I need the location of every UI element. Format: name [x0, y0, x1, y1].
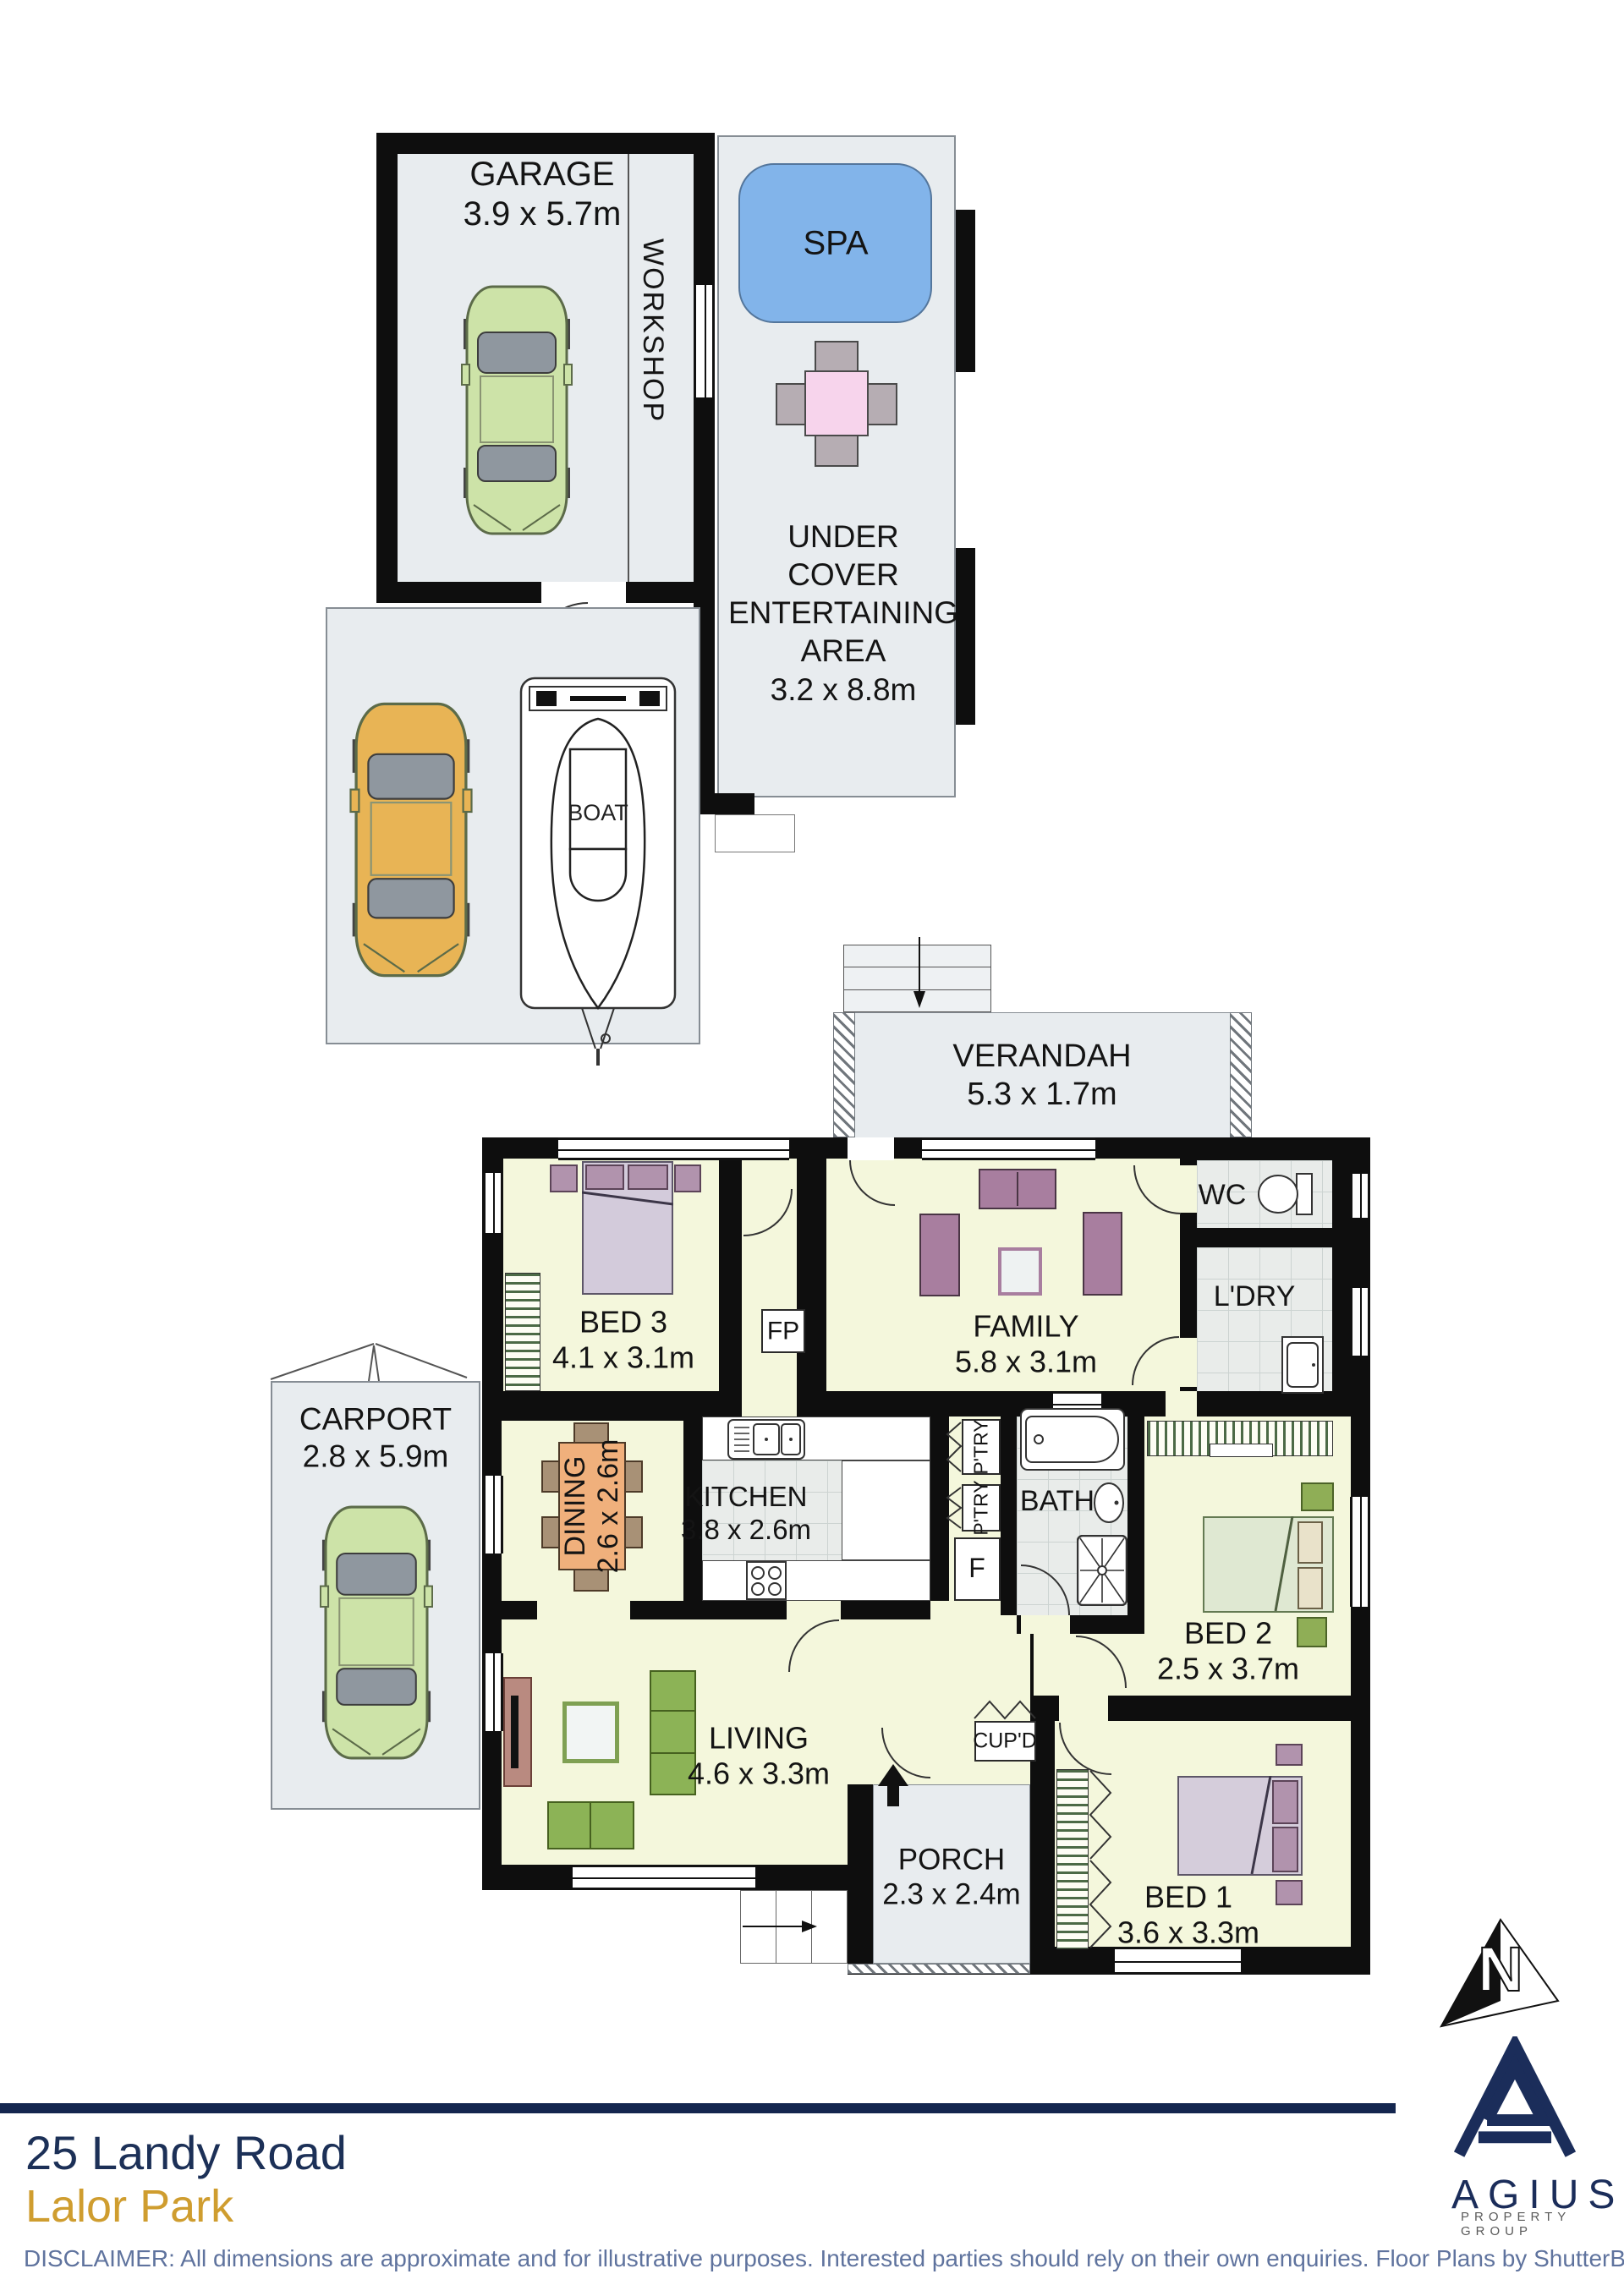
bed3-name: BED 3: [579, 1305, 667, 1340]
kitchen-stove: [746, 1561, 787, 1600]
entertaining-right-wall-2: [956, 548, 975, 725]
entertaining-step: [715, 814, 795, 852]
kitchen-name: KITCHEN: [685, 1481, 808, 1512]
bed3-dims: 4.1 x 3.1m: [552, 1340, 694, 1375]
family-name: FAMILY: [973, 1309, 1078, 1344]
footer-divider: [0, 2103, 1396, 2113]
agius-logo-tagline: PROPERTY GROUP: [1461, 2210, 1624, 2238]
shower: [1077, 1535, 1127, 1606]
bed3-left-window: [483, 1173, 503, 1233]
workshop-window: [694, 285, 715, 397]
bed2-dims: 2.5 x 3.7m: [1157, 1652, 1299, 1686]
address-street: 25 Landy Road: [25, 2125, 347, 2180]
tv: [511, 1696, 518, 1768]
entertaining-right-wall-1: [956, 210, 975, 372]
agius-logo-icon: [1451, 2036, 1579, 2163]
dining-left-window: [483, 1476, 503, 1553]
wc-label: WC: [1199, 1178, 1247, 1212]
entertaining-line4: AREA: [801, 634, 886, 669]
carport-label: CARPORT 2.8 x 5.9m: [299, 1400, 452, 1474]
bed1-pillow-2: [1272, 1827, 1298, 1872]
garage-door-gap: [541, 582, 626, 603]
bed3-pillow-1: [585, 1164, 624, 1190]
disclaimer-text: DISCLAIMER: All dimensions are approxima…: [24, 2245, 1624, 2272]
verandah-hatch-right: [1230, 1012, 1252, 1137]
porch-label: PORCH 2.3 x 2.4m: [882, 1843, 1020, 1913]
bed3-top-window: [558, 1137, 789, 1160]
kitchen-label: KITCHEN 3.8 x 2.6m: [681, 1481, 811, 1547]
bed2-right-window: [1350, 1497, 1370, 1607]
carport-name: CARPORT: [299, 1401, 452, 1436]
garage-car: [461, 283, 573, 537]
spa-label: SPA: [803, 223, 868, 263]
pantry-bath-wall: [1001, 1417, 1017, 1615]
hardstand-car: [347, 700, 475, 979]
verandah-steps-arrow: [909, 937, 930, 1010]
wc-toilet: [1256, 1172, 1315, 1216]
outdoor-chair-right: [865, 383, 897, 425]
floorplan-page: GARAGE 3.9 x 5.7m WORKSHOP SPA UNDER COV…: [0, 0, 1624, 2296]
bed2-pillow-1: [1298, 1521, 1323, 1564]
bed1-fold-line: [1218, 1776, 1272, 1876]
porch-dims: 2.3 x 2.4m: [882, 1878, 1020, 1911]
living-label: LIVING 4.6 x 3.3m: [688, 1721, 830, 1793]
family-coffee-table: [998, 1247, 1042, 1296]
boat-trailer: BOAT: [518, 675, 680, 1068]
family-armchair-left: [919, 1214, 960, 1296]
verandah-dims: 5.3 x 1.7m: [967, 1077, 1116, 1112]
garage-name: GARAGE: [469, 156, 614, 193]
bed1-wardrobe: [1056, 1769, 1089, 1949]
porch-step-hatch: [848, 1964, 1030, 1974]
pantry-door-zigzag-1: [946, 1421, 963, 1473]
bed3-label: BED 3 4.1 x 3.1m: [552, 1305, 694, 1377]
bed1-wardrobe-doors: [1089, 1769, 1112, 1949]
bed3-fold-line: [582, 1191, 673, 1208]
hall1-opening: [742, 1391, 797, 1417]
living-bottom-window: [573, 1865, 755, 1890]
bed3-right-wall: [719, 1236, 742, 1395]
fridge-label: F: [968, 1553, 985, 1585]
family-label: FAMILY 5.8 x 3.1m: [955, 1309, 1097, 1381]
boat-label: BOAT: [568, 800, 628, 825]
bed1-cushion-bottom: [1276, 1880, 1303, 1905]
verandah-name: VERANDAH: [952, 1038, 1131, 1074]
carport-gable: [269, 1339, 470, 1383]
outdoor-table: [804, 370, 869, 436]
garage-dims: 3.9 x 5.7m: [464, 195, 622, 233]
verandah-label: VERANDAH 5.3 x 1.7m: [952, 1038, 1131, 1114]
bed3-pillow-2: [628, 1164, 668, 1190]
dining-chair-l2: [541, 1516, 560, 1548]
living-dims: 4.6 x 3.3m: [688, 1756, 830, 1791]
address-suburb: Lalor Park: [25, 2180, 233, 2233]
bed1-name: BED 1: [1144, 1880, 1232, 1915]
side-wall-foot: [694, 793, 754, 814]
bed1-door-gap: [1059, 1696, 1108, 1721]
living-coffee-table: [562, 1701, 619, 1763]
porch-name: PORCH: [898, 1844, 1005, 1877]
wc-right-window: [1350, 1174, 1370, 1218]
family-sofa-line: [1017, 1172, 1018, 1206]
entertaining-line1: UNDER: [787, 519, 899, 554]
kitchen-dims: 3.8 x 2.6m: [681, 1514, 811, 1545]
bed1-cushion-top: [1276, 1744, 1303, 1766]
bed2-wardrobe-notch: [1210, 1444, 1273, 1457]
bed2-label: BED 2 2.5 x 3.7m: [1157, 1616, 1299, 1688]
bed2-fold-line: [1243, 1516, 1294, 1613]
bed3-sidetable-left: [550, 1164, 578, 1192]
outdoor-chair-left: [776, 383, 808, 425]
porch-entry-arrow: [878, 1764, 908, 1806]
bath-basin: [1093, 1482, 1125, 1524]
laundry-label: L'DRY: [1214, 1280, 1296, 1313]
bed1-pillow-1: [1272, 1780, 1298, 1824]
cupboard-label: CUP'D: [973, 1729, 1037, 1754]
kitchen-bench-bottom: [702, 1560, 930, 1601]
family-top-window: [922, 1137, 1095, 1160]
side-steps-arrow: [743, 1918, 819, 1935]
outdoor-chair-top: [815, 341, 859, 373]
dining-label: DINING 2.6 x 2.6m: [559, 1439, 625, 1574]
wc-laundry-wall: [1197, 1228, 1332, 1247]
corridor-opening: [1166, 1391, 1197, 1417]
mid-wall-row: [502, 1391, 1351, 1417]
dining-wall-stub: [502, 1601, 537, 1619]
garage-label: GARAGE 3.9 x 5.7m: [464, 155, 622, 234]
dining-name: DINING: [559, 1456, 591, 1557]
kitchen-bench-right: [842, 1460, 930, 1560]
bed2-name: BED 2: [1184, 1616, 1272, 1651]
living-left-window: [483, 1653, 503, 1731]
living-sofa-bottom-line: [590, 1803, 591, 1848]
corridor-door-gap-top: [1180, 1165, 1197, 1213]
laundry-right-window: [1350, 1288, 1370, 1356]
north-arrow-icon: N: [1436, 1916, 1563, 2031]
dining-chair-r1: [624, 1460, 643, 1493]
family-armchair-right: [1083, 1212, 1122, 1296]
kitchen-door-gap: [787, 1601, 841, 1619]
corridor-door-gap-bottom: [1180, 1338, 1197, 1387]
family-dims: 5.8 x 3.1m: [955, 1345, 1097, 1379]
outdoor-chair-bottom: [815, 435, 859, 467]
dining-chair-r2: [624, 1516, 643, 1548]
bath-label: BATH: [1020, 1484, 1095, 1518]
workshop-label: WORKSHOP: [636, 238, 669, 423]
verandah-door-gap: [848, 1137, 894, 1160]
laundry-tub: [1281, 1336, 1324, 1394]
living-name: LIVING: [709, 1721, 809, 1756]
verandah-hatch-left: [833, 1012, 855, 1137]
pantry-top-label: P'TRY: [970, 1419, 993, 1474]
dining-chair-l1: [541, 1460, 560, 1493]
fireplace-label: FP: [767, 1316, 799, 1345]
entertaining-label: UNDER COVER ENTERTAINING AREA 3.2 x 8.8m: [728, 518, 958, 709]
entertaining-line2: COVER: [787, 557, 899, 592]
svg-text:N: N: [1478, 1934, 1522, 2004]
kitchen-sink: [727, 1419, 805, 1460]
carport-car: [320, 1504, 433, 1762]
bed2-side-square-top: [1301, 1482, 1334, 1511]
bed1-label: BED 1 3.6 x 3.3m: [1117, 1880, 1259, 1952]
entertaining-dims: 3.2 x 8.8m: [771, 672, 917, 707]
bathtub: [1020, 1408, 1125, 1471]
bed2-pillow-2: [1298, 1567, 1323, 1609]
entertaining-line3: ENTERTAINING: [728, 595, 958, 630]
garage-workshop-divider: [628, 154, 629, 582]
dining-dims: 2.6 x 2.6m: [592, 1439, 624, 1574]
carport-dims: 2.8 x 5.9m: [303, 1438, 449, 1473]
bed2-side-square-bottom: [1297, 1617, 1327, 1647]
bath-door-gap: [1021, 1615, 1070, 1634]
cupboard-door-zigzag: [973, 1698, 1037, 1720]
pantry-bottom-label: P'TRY: [970, 1480, 993, 1535]
bed1-dims: 3.6 x 3.3m: [1117, 1915, 1259, 1950]
bed3-wardrobe: [505, 1273, 540, 1391]
bath-bed2-wall: [1127, 1417, 1144, 1615]
bed3-sidetable-right: [674, 1164, 701, 1192]
living-sofa-right-line: [650, 1710, 696, 1712]
pantry-door-zigzag-2: [946, 1486, 963, 1530]
